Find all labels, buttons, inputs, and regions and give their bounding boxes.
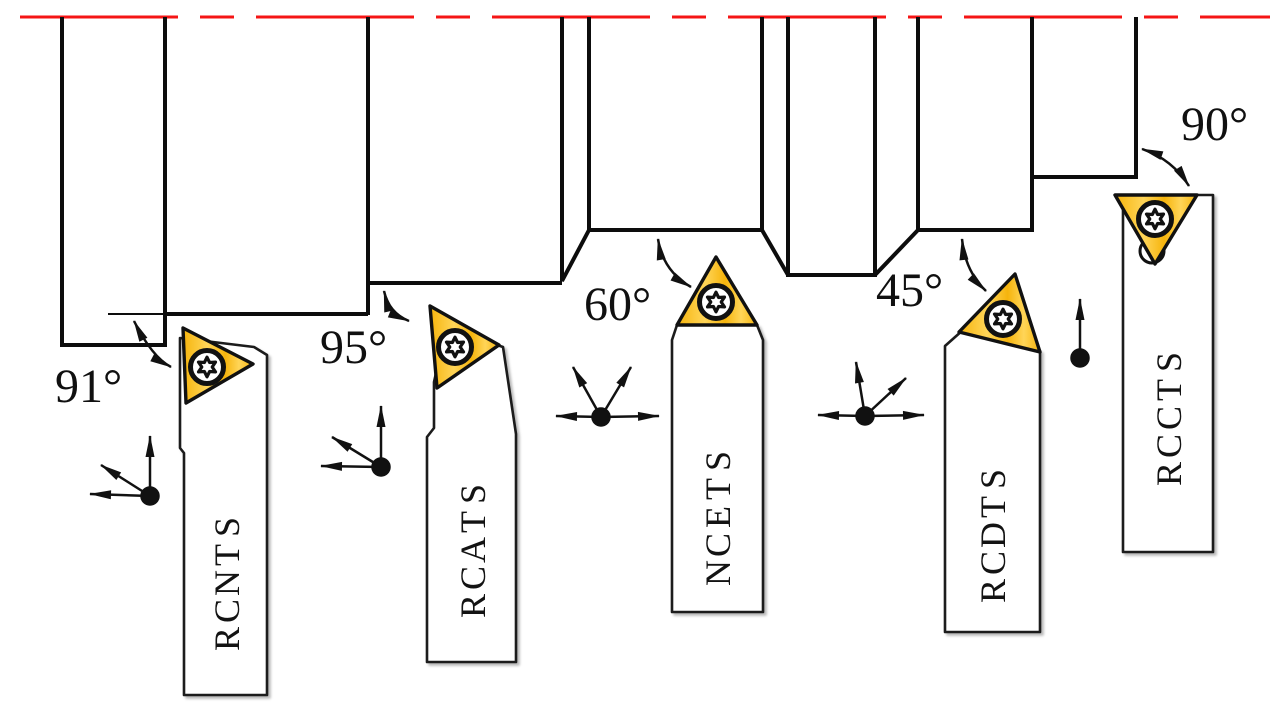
tool-name-stccr: STCCR	[1146, 348, 1192, 488]
angle-arc-45	[962, 239, 986, 291]
angle-label-stdcr: 45°	[876, 267, 943, 315]
torx-screw-stdcr	[987, 303, 1020, 336]
feed-origin-dot	[593, 409, 610, 426]
feed-arrows-stdcr	[818, 362, 924, 425]
feed-origin-dot	[142, 488, 159, 505]
angle-label-stacr: 95°	[320, 324, 387, 372]
angle-arc-90	[1142, 149, 1189, 186]
tool-name-stecn: STECN	[695, 447, 741, 587]
angle-label-stncr: 91°	[55, 363, 122, 411]
feed-origin-dot	[857, 408, 874, 425]
torx-screw-stacr	[439, 331, 472, 364]
feed-arrows-stncr	[90, 436, 159, 505]
torx-screw-stecn	[700, 286, 733, 319]
tool-name-stacr: STACR	[450, 480, 496, 620]
tool-name-stncr: STNCR	[204, 513, 250, 653]
angle-arc-95	[384, 291, 409, 321]
feed-arrows-stacr	[321, 406, 390, 476]
angle-label-stecn: 60°	[584, 281, 651, 329]
tool-holder-bodies	[180, 195, 1213, 695]
feed-origin-dot	[1072, 350, 1089, 367]
feed-arrows-stccr	[1072, 299, 1089, 367]
torx-screw-stccr	[1139, 203, 1172, 236]
feed-origin-dot	[373, 459, 390, 476]
feed-arrows-stecn	[556, 367, 659, 426]
diagram-canvas	[0, 0, 1280, 719]
torx-screw-stncr	[191, 351, 224, 384]
angle-arc-60	[658, 239, 691, 287]
angle-label-stccr: 90°	[1181, 101, 1248, 149]
tool-name-stdcr: STDCR	[970, 465, 1016, 605]
lathe-toolholder-lead-angle-diagram: 91° 95° 60° 45° 90° STNCR STACR STECN ST…	[0, 0, 1280, 719]
